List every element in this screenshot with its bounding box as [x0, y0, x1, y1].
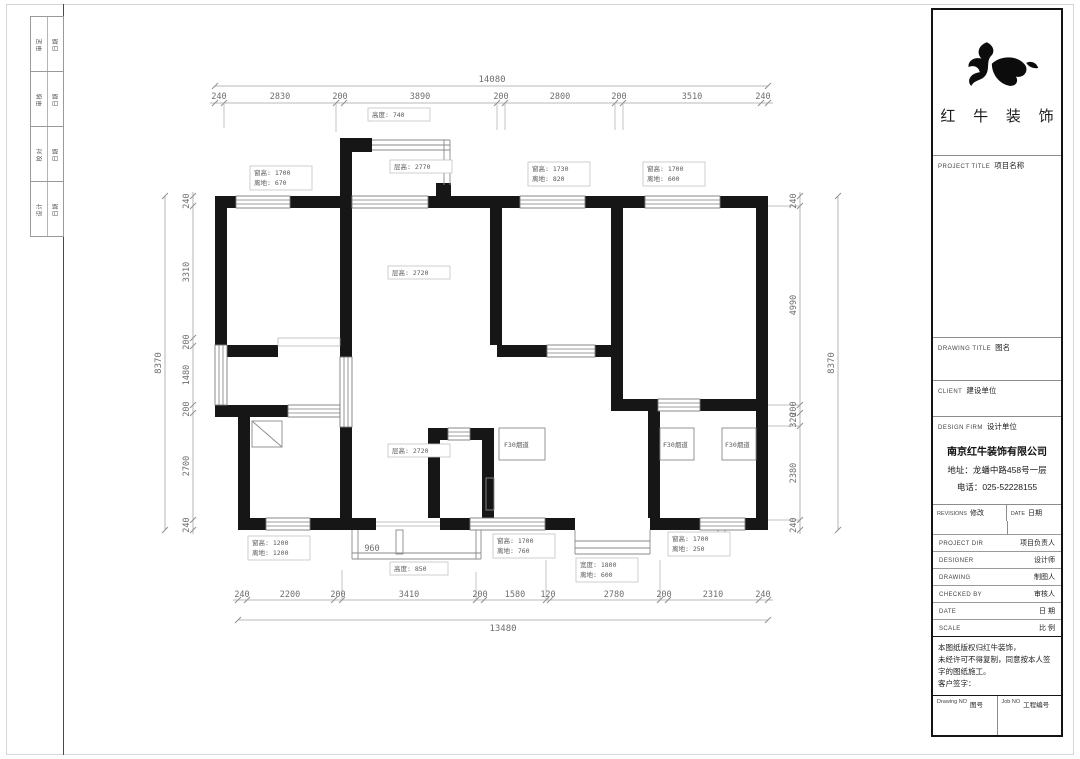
label-box: 高度: 740 [368, 108, 430, 121]
window [352, 196, 428, 208]
dim-value: 200 [611, 92, 626, 102]
brand-name: 红 牛 装 饰 [940, 105, 1060, 126]
drawing-no-zh: 图号 [970, 699, 983, 709]
label-box: 窗高: 1730 离地: 820 [528, 162, 590, 186]
flue-label: F30烟道 [504, 440, 529, 449]
drawing-title-en: DRAWING TITLE [938, 346, 991, 352]
dim-value: 2800 [550, 92, 570, 102]
dim-value: 200 [493, 92, 508, 102]
drawing-title-zh: 图名 [995, 342, 1010, 353]
company-phone: 电话：025-52228155 [937, 481, 1057, 493]
dim-value: 3890 [410, 92, 430, 102]
copyright-note: 本图纸版权归红牛装饰， 未经许可不得复制，同意按本人签字的图纸施工。 客户签字： [933, 636, 1061, 695]
info-value: 制图人 [1034, 572, 1055, 582]
flue-label: F30烟道 [663, 440, 688, 449]
label-box: 层高: 2770 [390, 160, 452, 173]
closet-line [278, 338, 340, 346]
dim-value: 2310 [703, 590, 723, 600]
label-box: 窗高: 1700 离地: 760 [493, 534, 555, 558]
window [215, 345, 227, 405]
info-value: 审核人 [1034, 589, 1055, 599]
client-row: CLIENT 建设单位 [933, 380, 1061, 400]
dim-value: 2380 [789, 463, 799, 483]
dim-value: 240 [755, 590, 770, 600]
flue-box [252, 421, 282, 447]
company-logo: 红 牛 装 饰 [933, 10, 1061, 155]
annotation-text: 离地: 1200 [252, 548, 289, 557]
info-value: 日 期 [1039, 606, 1055, 616]
dim-value: 240 [182, 517, 192, 532]
dim-value: 200 [330, 590, 345, 600]
annotation-text: 宽度: 1800 [580, 560, 617, 569]
info-row-date: DATE 日 期 [933, 602, 1061, 619]
annotation-text: 层高: 2720 [392, 268, 429, 277]
annotation-text: 离地: 250 [672, 544, 705, 553]
dim-value: 4990 [789, 295, 799, 315]
annotation-text: 窗高: 1700 [672, 534, 709, 543]
info-label: DESIGNER [939, 558, 974, 564]
annotation-text: 层高: 2770 [394, 162, 431, 171]
client-en: CLIENT [938, 389, 962, 395]
annotation-text: 窗高: 1700 [497, 536, 534, 545]
dim-total-right: 8370 [827, 352, 837, 374]
info-value: 比 例 [1039, 623, 1055, 633]
dim-value: 3410 [399, 590, 419, 600]
label-box: 窗高: 1700 离地: 250 [668, 532, 730, 556]
client-space [933, 400, 1061, 415]
window [470, 518, 545, 530]
title-block: 红 牛 装 饰 PROJECT TITLE 项目名称 DRAWING TITLE… [931, 8, 1063, 737]
revisions-space [933, 521, 1061, 535]
company-address: 地址：龙蟠中路458号一层 [937, 464, 1057, 476]
info-value: 设计师 [1034, 555, 1055, 565]
dim-value: 240 [234, 590, 249, 600]
annotation-text: 窗高: 1200 [252, 538, 289, 547]
drawing-no-cell: Drawing NO 图号 [933, 696, 997, 735]
terrace-width-dim: 960 [364, 544, 379, 554]
window [700, 518, 745, 530]
job-no-zh: 工程编号 [1023, 699, 1049, 709]
annotation-text: 窗高: 1700 [254, 168, 291, 177]
dimension-bottom: 240 2200 200 3410 200 1580 120 2780 200 … [233, 560, 773, 634]
drawing-sheet: 审定 日期 审核 日期 校对 日期 设计 日期 [0, 0, 1080, 759]
drawing-title-space [933, 357, 1061, 380]
info-value: 项目负责人 [1020, 538, 1055, 548]
company-name: 南京红牛装饰有限公司 [937, 443, 1057, 458]
drawing-title-row: DRAWING TITLE 图名 [933, 337, 1061, 357]
label-box: 高度: 850 [390, 562, 448, 575]
window [236, 196, 290, 208]
dim-value: 320 [789, 412, 799, 427]
door-opening [288, 405, 340, 417]
dim-value: 240 [182, 193, 192, 208]
design-firm-zh: 设计单位 [987, 421, 1017, 432]
dim-value: 1480 [182, 365, 192, 385]
annotation-text: 高度: 740 [372, 110, 405, 119]
label-box: 窗高: 1700 离地: 670 [250, 166, 312, 190]
label-box: 窗高: 1700 离地: 600 [643, 162, 705, 186]
dim-value: 200 [332, 92, 347, 102]
info-label: DATE [939, 609, 956, 615]
revisions-zh: 修改 [970, 508, 984, 518]
revisions-en: REVISIONS [937, 511, 967, 517]
company-info: 南京红牛装饰有限公司 地址：龙蟠中路458号一层 电话：025-52228155 [933, 436, 1061, 504]
dim-value: 2200 [280, 590, 300, 600]
dim-value: 240 [789, 517, 799, 532]
note-line: 本图纸版权归红牛装饰， [938, 642, 1056, 654]
dimension-left: 240 3310 200 1480 200 2700 240 8370 [154, 192, 196, 534]
dim-value: 3310 [182, 262, 192, 282]
annotation-text: 离地: 760 [497, 546, 530, 555]
info-row-checked-by: CHECKED BY 审核人 [933, 585, 1061, 602]
door-opening [547, 345, 595, 357]
note-line: 客户签字： [938, 678, 1056, 690]
dim-total-left: 8370 [154, 352, 164, 374]
dim-value: 200 [656, 590, 671, 600]
label-box: 层高: 2720 [388, 444, 450, 457]
job-no-en: Job NO [1002, 699, 1021, 705]
job-no-cell: Job NO 工程编号 [997, 696, 1062, 735]
dimension-top: 14080 240 2830 200 3890 200 2800 200 351… [210, 75, 773, 132]
annotation-text: 高度: 850 [394, 564, 427, 573]
bay-window-bottom [575, 530, 650, 554]
project-title-zh: 项目名称 [994, 160, 1024, 171]
drawing-no-en: Drawing NO [937, 699, 967, 705]
info-label: CHECKED BY [939, 592, 982, 598]
info-row-scale: SCALE 比 例 [933, 619, 1061, 636]
info-row-project-dir: PROJECT DIR 项目负责人 [933, 534, 1061, 551]
dim-total-top: 14080 [478, 75, 505, 85]
revisions-cell: REVISIONS 修改 [933, 505, 1006, 521]
dim-value: 1580 [505, 590, 525, 600]
info-label: DRAWING [939, 575, 971, 581]
door-opening [658, 399, 700, 411]
revisions-header: REVISIONS 修改 DATE 日期 [933, 504, 1061, 521]
annotation-text: 离地: 670 [254, 178, 287, 187]
dim-value: 240 [211, 92, 226, 102]
label-box: 窗高: 1200 离地: 1200 [248, 536, 310, 560]
annotation-text: 离地: 600 [580, 570, 613, 579]
dim-value: 200 [472, 590, 487, 600]
project-title-en: PROJECT TITLE [938, 164, 990, 170]
dim-value: 240 [789, 193, 799, 208]
design-firm-en: DESIGN FIRM [938, 425, 983, 431]
note-line: 未经许可不得复制，同意按本人签字的图纸施工。 [938, 654, 1056, 678]
client-zh: 建设单位 [966, 385, 996, 396]
dim-value: 240 [755, 92, 770, 102]
annotation-text: 层高: 2720 [392, 446, 429, 455]
drawing-number-row: Drawing NO 图号 Job NO 工程编号 [933, 695, 1061, 735]
dimension-right: 240 4990 200 320 2380 240 8370 [768, 192, 841, 534]
bull-logo-icon [954, 39, 1040, 97]
info-label: SCALE [939, 626, 961, 632]
windows [215, 196, 745, 530]
design-firm-row: DESIGN FIRM 设计单位 [933, 416, 1061, 436]
floor-plan: 14080 240 2830 200 3890 200 2800 200 351… [0, 0, 930, 759]
dim-value: 120 [540, 590, 555, 600]
annotation-text: 离地: 820 [532, 174, 565, 183]
dim-value: 3510 [682, 92, 702, 102]
door-leaf [396, 530, 403, 554]
annotation-text: 离地: 600 [647, 174, 680, 183]
flue-label: F30烟道 [725, 440, 750, 449]
dim-value: 2830 [270, 92, 290, 102]
project-title-row: PROJECT TITLE 项目名称 [933, 155, 1061, 175]
project-title-space [933, 175, 1061, 337]
annotation-text: 窗高: 1730 [532, 164, 569, 173]
info-row-designer: DESIGNER 设计师 [933, 551, 1061, 568]
dim-value: 200 [182, 334, 192, 349]
info-label: PROJECT DIR [939, 541, 983, 547]
dim-total-bottom: 13480 [489, 624, 516, 634]
label-box: 层高: 2720 [388, 266, 450, 279]
window [266, 518, 310, 530]
dim-value: 2700 [182, 456, 192, 476]
date-en: DATE [1011, 511, 1025, 517]
date-zh: 日期 [1028, 508, 1042, 518]
revisions-date-cell: DATE 日期 [1006, 505, 1061, 521]
door-opening [448, 428, 470, 440]
info-row-drawing: DRAWING 制图人 [933, 568, 1061, 585]
window [645, 196, 720, 208]
annotation-text: 窗高: 1700 [647, 164, 684, 173]
dim-value: 2780 [604, 590, 624, 600]
label-box: 宽度: 1800 离地: 600 [576, 558, 638, 582]
dim-value: 200 [182, 401, 192, 416]
window [520, 196, 585, 208]
door-opening [340, 357, 352, 427]
